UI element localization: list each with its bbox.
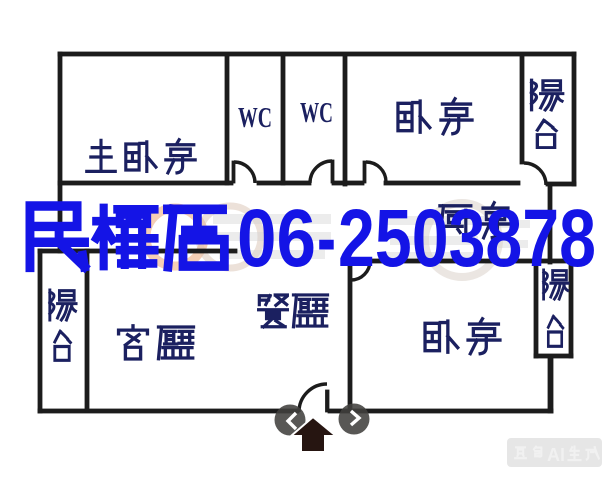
svg-text:AI: AI — [547, 445, 565, 465]
svg-text:WC: WC — [300, 97, 333, 129]
svg-text:2503878: 2503878 — [338, 193, 596, 284]
svg-text:-: - — [317, 193, 336, 284]
svg-text:WC: WC — [238, 102, 272, 134]
svg-text:06: 06 — [237, 193, 316, 284]
